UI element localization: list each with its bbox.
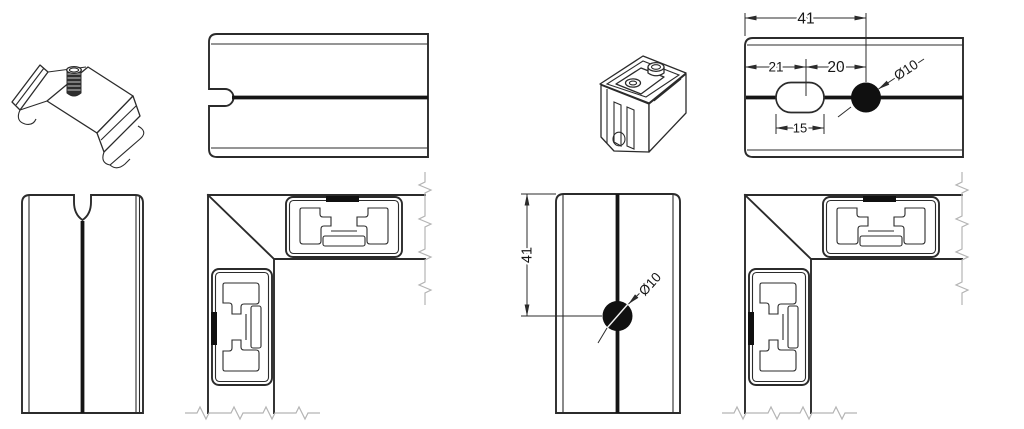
profile-front-view-notched — [22, 195, 143, 413]
dim-hole-diameter: Ø10 — [891, 57, 921, 83]
dim-total-width: 41 — [797, 11, 814, 28]
bracket-screw-boss — [648, 63, 664, 72]
profile-top-view-dimensioned: 41 21 20 15 Ø10 — [745, 11, 963, 158]
clip-left-curl — [18, 110, 36, 124]
round-hole — [851, 83, 881, 113]
bracket-screw-boss — [626, 79, 641, 87]
clip-isometric-view — [12, 65, 144, 168]
slot-hole — [776, 83, 824, 113]
profile-outline — [209, 34, 428, 157]
dim-slot-to-hole: 20 — [827, 59, 845, 76]
dim-edge-to-slot: 21 — [768, 60, 783, 75]
dim-slot-length: 15 — [793, 121, 807, 136]
dim-edge-to-hole: 41 — [520, 247, 536, 263]
dim-hole-diameter: Ø10 — [636, 269, 664, 298]
profile-front-view-dimensioned: Ø10 41 — [520, 194, 681, 413]
corner-bracket-isometric-view — [600, 56, 686, 152]
profile-top-view-notched — [209, 34, 428, 157]
technical-drawing-canvas: 41 21 20 15 Ø10 Ø10 41 — [0, 0, 1024, 429]
corner-joint-section-right — [722, 172, 968, 419]
corner-joint-section-left — [185, 172, 431, 419]
